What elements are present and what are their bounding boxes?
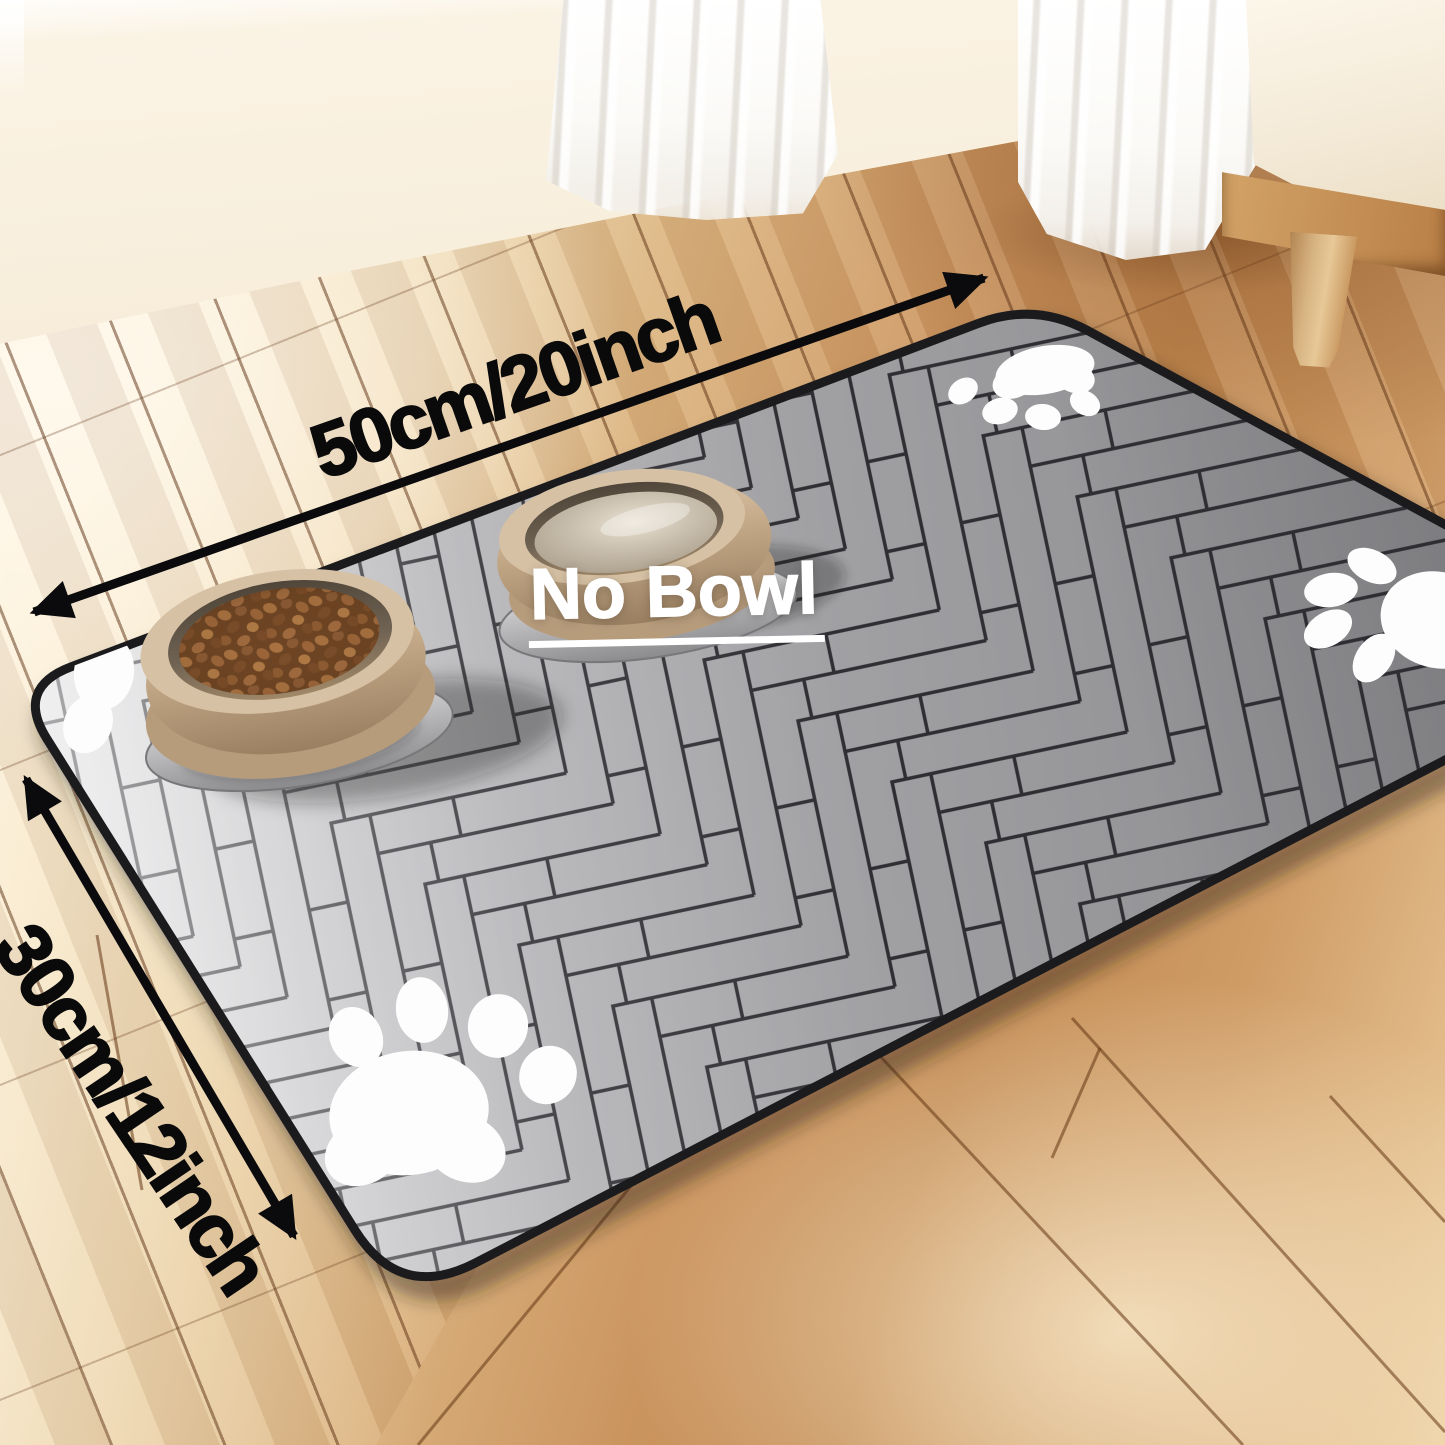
- no-bowl-label: No Bowl: [527, 553, 825, 648]
- product-photo-pet-feeding-mat: 50cm/20inch 30cm/12inch No Bowl: [0, 0, 1445, 1445]
